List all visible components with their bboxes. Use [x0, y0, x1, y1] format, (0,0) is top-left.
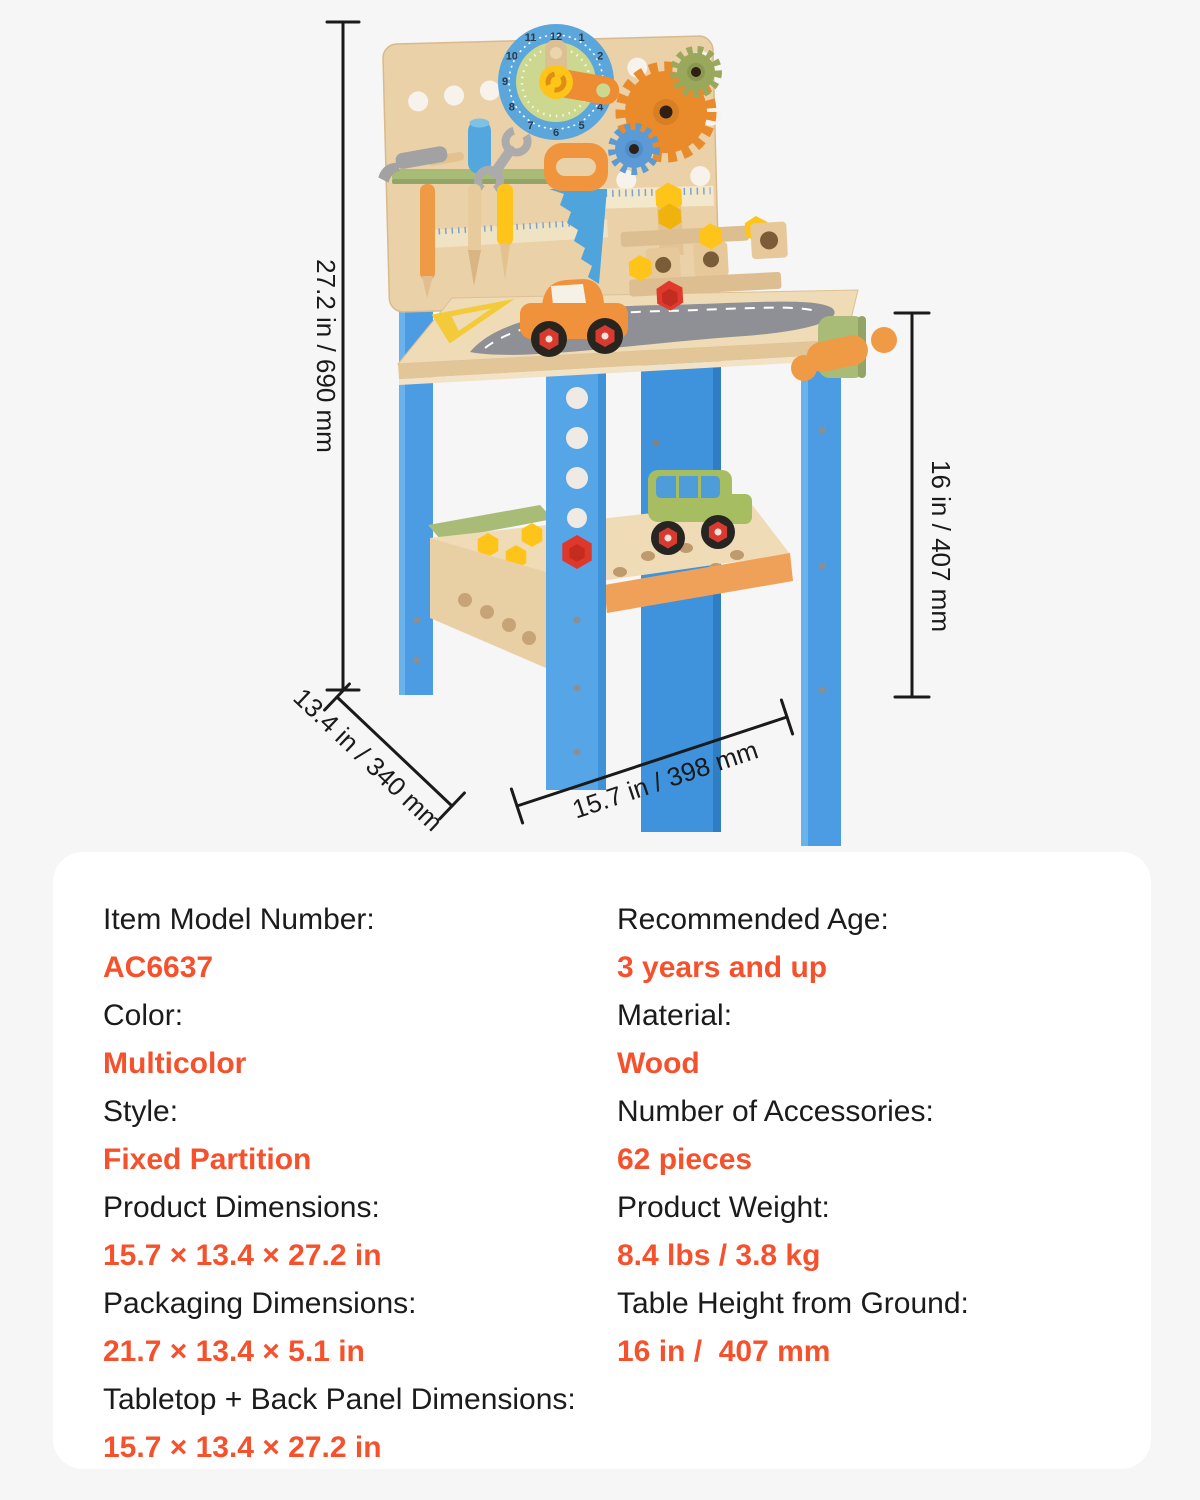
spec-value: 62 pieces — [617, 1136, 1151, 1184]
spec-column-right: Recommended Age: 3 years and up Material… — [617, 896, 1151, 1469]
spec-label: Product Weight: — [617, 1184, 1151, 1232]
clock-number: 8 — [509, 102, 515, 114]
spec-value: 21.7 × 13.4 × 5.1 in — [103, 1328, 617, 1376]
spec-column-left: Item Model Number: AC6637 Color: Multico… — [103, 896, 617, 1469]
spec-value: 15.7 × 13.4 × 27.2 in — [103, 1424, 617, 1472]
lower-tray — [428, 470, 793, 668]
table-height-dimension-label: 16 in / 407 mm — [926, 460, 956, 632]
product-illustration-area: 12 1 2 3 4 5 6 7 8 9 10 11 — [0, 0, 1200, 852]
height-dimension-label: 27.2 in / 690 mm — [311, 259, 341, 453]
blue-cylinder-toy — [468, 119, 491, 175]
workbench-dimension-diagram: 12 1 2 3 4 5 6 7 8 9 10 11 — [0, 0, 1200, 852]
yellow-screwdriver-tool — [497, 184, 513, 246]
spec-label: Item Model Number: — [103, 896, 617, 944]
spec-label: Tabletop + Back Panel Dimensions: — [103, 1376, 617, 1424]
spec-value: Wood — [617, 1040, 1151, 1088]
tool-shelf — [392, 169, 550, 184]
clock-number: 9 — [502, 76, 508, 88]
spec-value: AC6637 — [103, 944, 617, 992]
workbench-front-center-leg — [546, 372, 606, 790]
spec-value: Multicolor — [103, 1040, 617, 1088]
spec-label: Product Dimensions: — [103, 1184, 617, 1232]
spec-label: Number of Accessories: — [617, 1088, 1151, 1136]
spec-label: Color: — [103, 992, 617, 1040]
tabletop — [398, 290, 858, 385]
depth-dimension-label: 13.4 in / 340 mm — [288, 682, 449, 837]
spec-label: Recommended Age: — [617, 896, 1151, 944]
orange-handle-tool — [420, 184, 435, 280]
clock-number: 6 — [553, 127, 559, 139]
clock-knob — [539, 65, 573, 99]
spec-card: Item Model Number: AC6637 Color: Multico… — [53, 852, 1151, 1469]
spec-value: 15.7 × 13.4 × 27.2 in — [103, 1232, 617, 1280]
clock-number: 11 — [525, 32, 537, 44]
spec-value: 8.4 lbs / 3.8 kg — [617, 1232, 1151, 1280]
clock-number: 2 — [597, 51, 603, 63]
clock-number: 10 — [506, 51, 518, 63]
wood-chisel-tool — [468, 184, 481, 254]
clock-number: 5 — [578, 120, 584, 132]
spec-label: Material: — [617, 992, 1151, 1040]
clock-number: 1 — [578, 32, 584, 44]
clock-number: 7 — [527, 120, 533, 132]
workbench-front-right-leg — [801, 318, 841, 846]
spec-label: Packaging Dimensions: — [103, 1280, 617, 1328]
table-height-dimension-line — [895, 313, 929, 697]
spec-value: 3 years and up — [617, 944, 1151, 992]
spec-value: Fixed Partition — [103, 1136, 617, 1184]
spec-label: Style: — [103, 1088, 617, 1136]
spec-label: Table Height from Ground: — [617, 1280, 1151, 1328]
spec-value: 16 in / 407 mm — [617, 1328, 1151, 1376]
